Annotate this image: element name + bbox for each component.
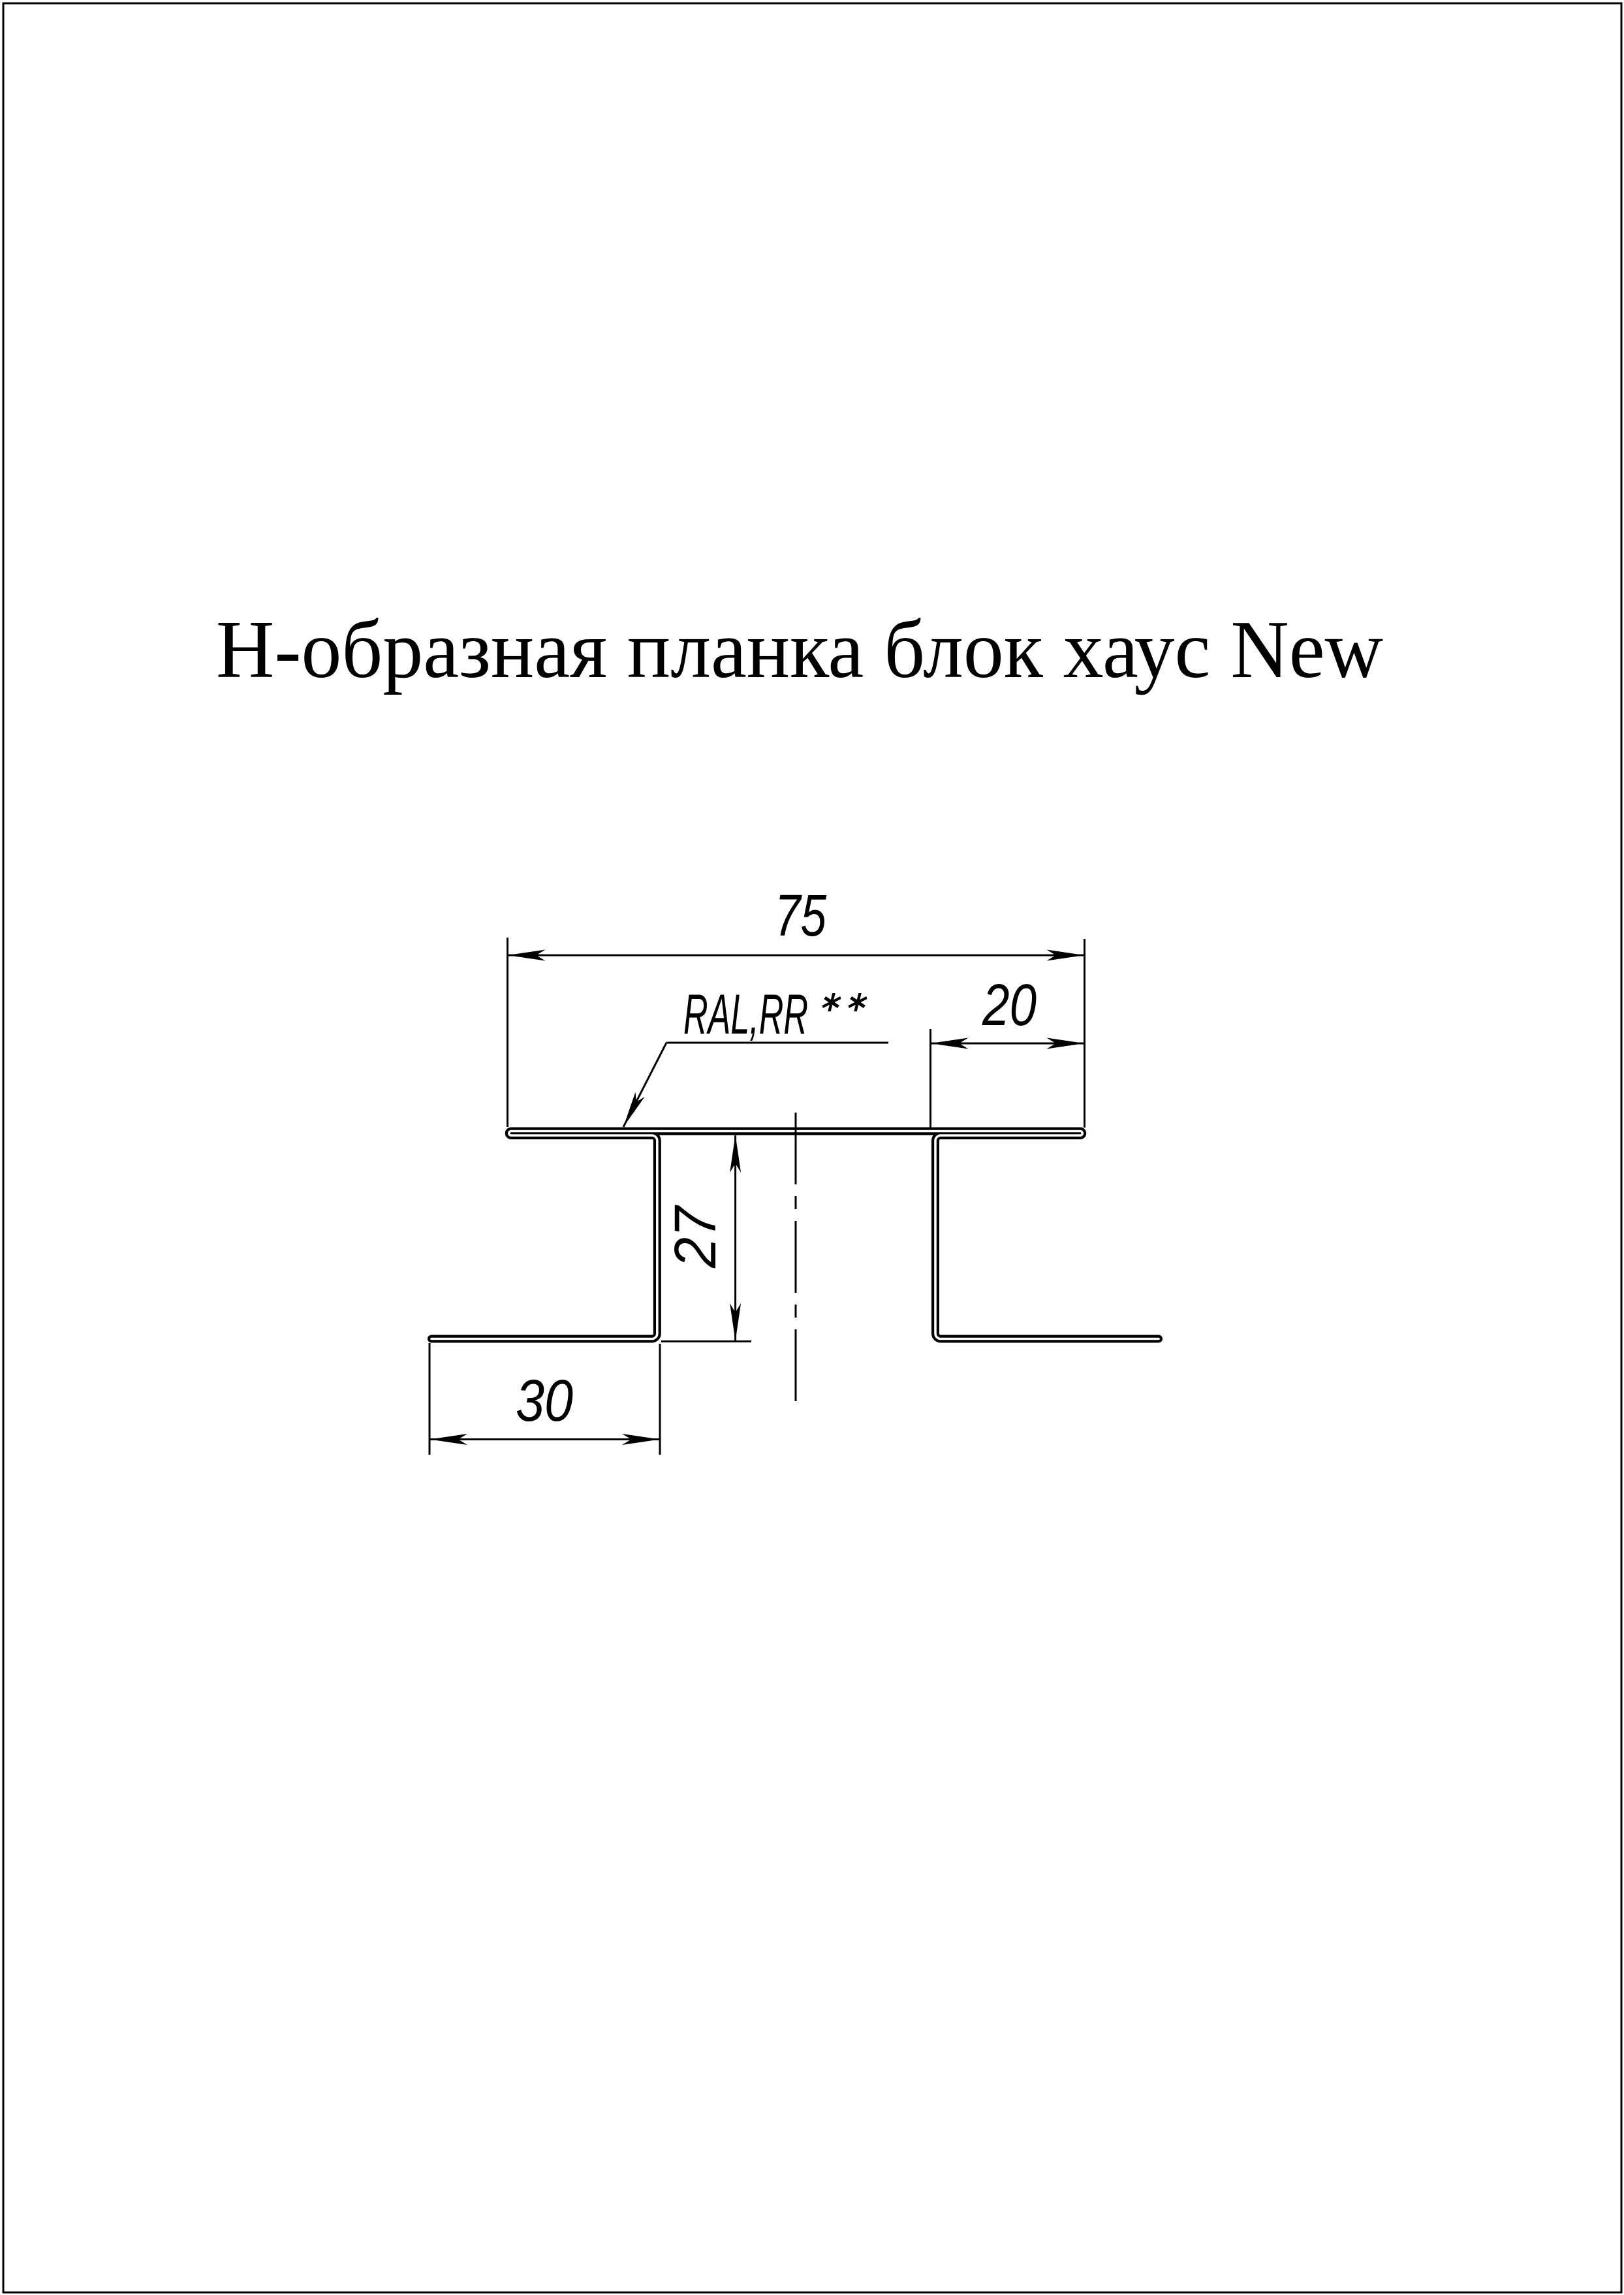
svg-text:20: 20 — [982, 973, 1037, 1038]
svg-text:30: 30 — [516, 1369, 573, 1434]
svg-text:Н-образная планка блок хаус Ne: Н-образная планка блок хаус New — [216, 605, 1383, 695]
svg-text:RAL,RR: RAL,RR — [683, 983, 808, 1046]
svg-text:75: 75 — [775, 883, 827, 949]
svg-text:27: 27 — [663, 1205, 728, 1269]
